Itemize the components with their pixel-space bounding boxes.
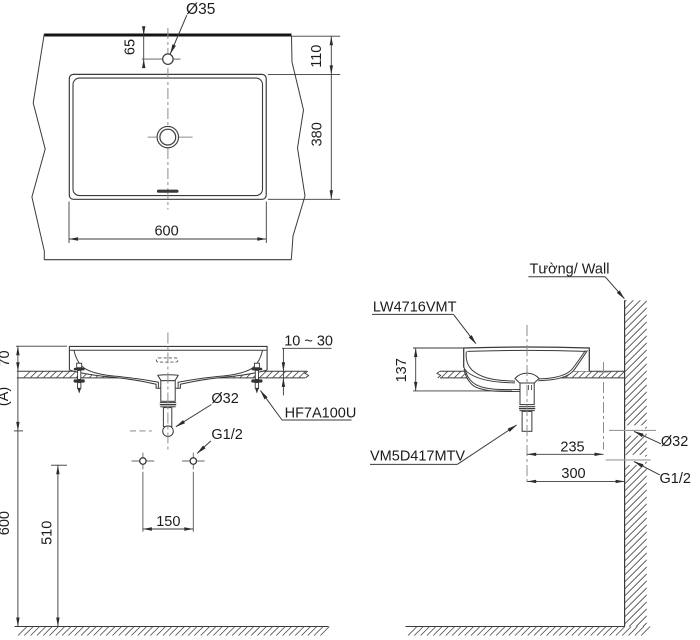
svg-text:10 ~ 30: 10 ~ 30	[284, 333, 333, 349]
svg-text:Tường/ Wall: Tường/ Wall	[530, 262, 610, 278]
svg-text:(A): (A)	[0, 387, 12, 406]
svg-text:G1/2: G1/2	[660, 471, 691, 487]
svg-text:65: 65	[123, 39, 139, 55]
svg-text:300: 300	[561, 466, 585, 482]
svg-text:235: 235	[560, 439, 584, 455]
svg-text:G1/2: G1/2	[211, 427, 242, 443]
svg-text:137: 137	[394, 358, 410, 382]
svg-text:70: 70	[0, 350, 13, 366]
svg-text:510: 510	[40, 521, 56, 545]
svg-text:600: 600	[154, 223, 178, 239]
svg-text:HF7A100U: HF7A100U	[285, 406, 357, 422]
svg-text:600: 600	[0, 511, 13, 535]
svg-text:380: 380	[310, 122, 326, 146]
svg-text:VM5D417MTV: VM5D417MTV	[370, 449, 465, 465]
svg-text:Ø32: Ø32	[211, 391, 238, 407]
svg-text:150: 150	[156, 514, 180, 530]
svg-text:LW4716VMT: LW4716VMT	[373, 300, 457, 316]
svg-text:Ø35: Ø35	[186, 1, 215, 18]
svg-text:Ø32: Ø32	[661, 434, 688, 450]
svg-text:110: 110	[309, 45, 325, 68]
